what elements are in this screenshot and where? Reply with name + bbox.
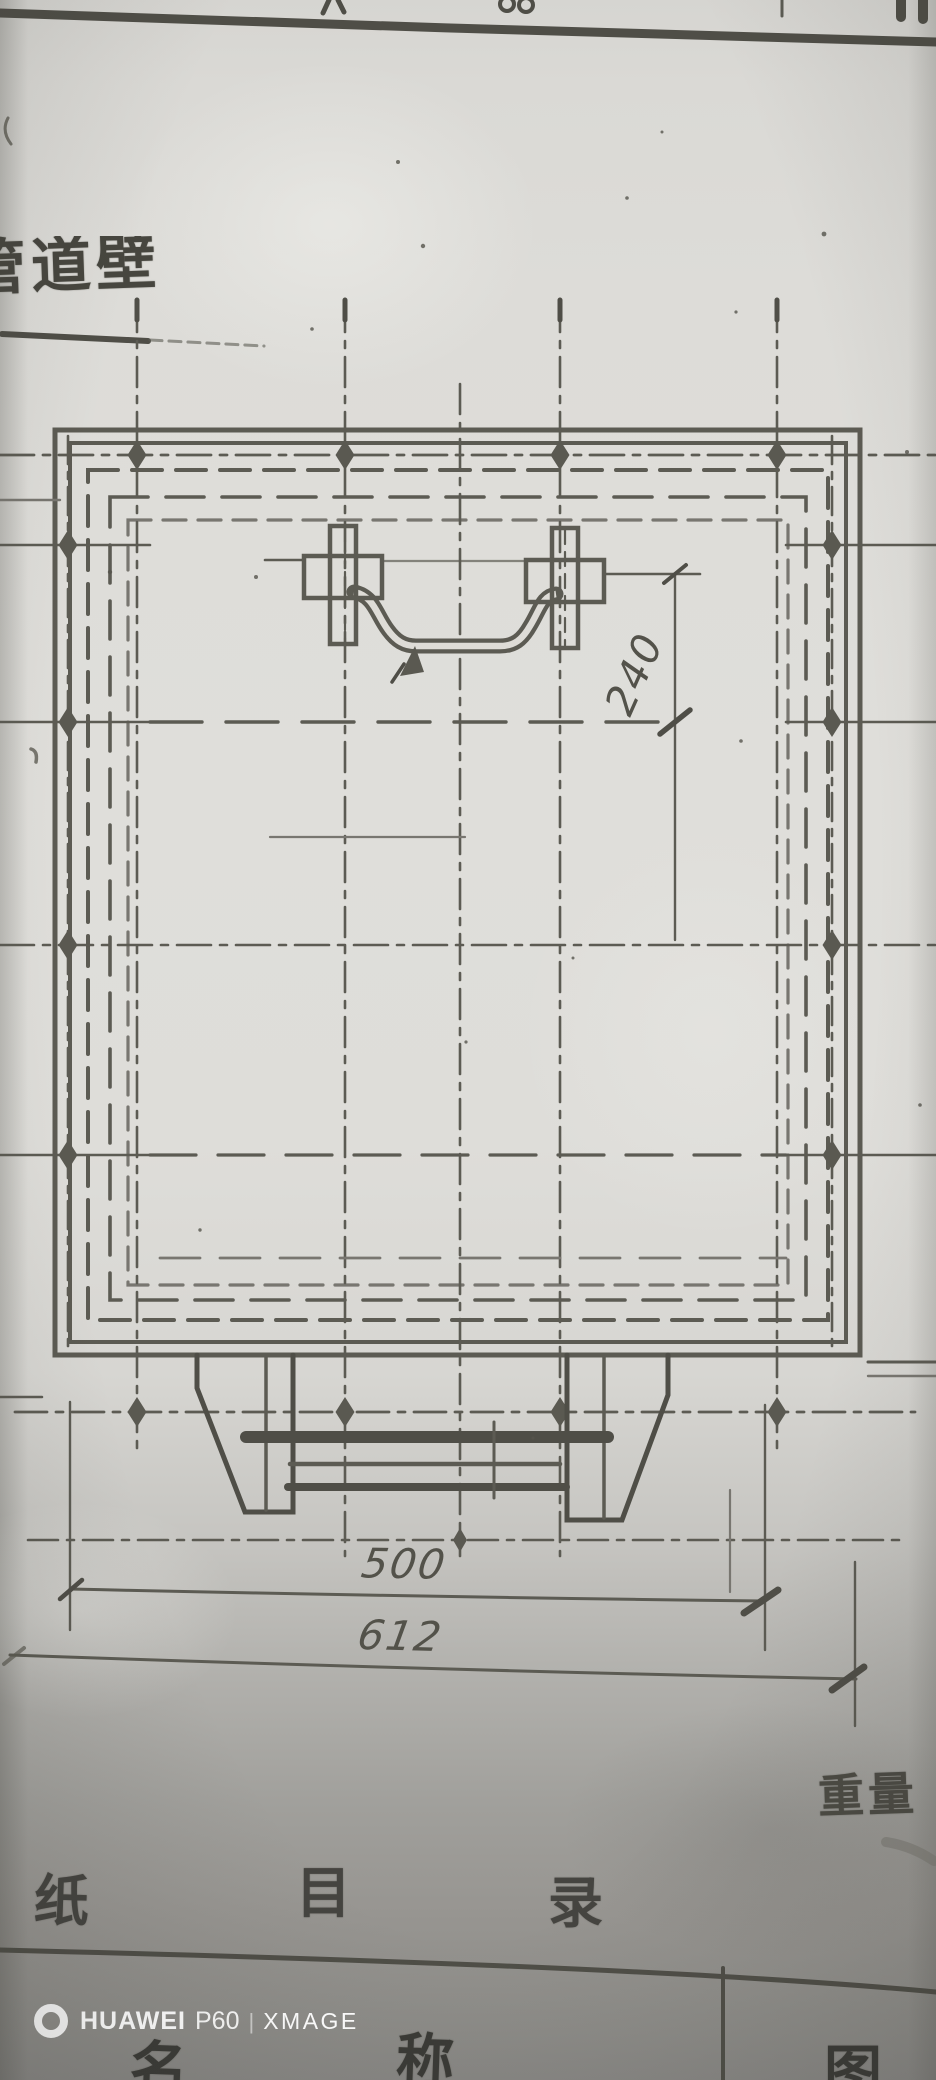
watermark-engine: XMAGE bbox=[263, 2008, 359, 2035]
name-col-char-ming: 名 bbox=[129, 2039, 189, 2080]
sheet-header-rule bbox=[0, 0, 936, 42]
figure-col-char-tu: 图 bbox=[824, 2044, 882, 2080]
catalog-char-mu: 目 bbox=[296, 1866, 351, 1921]
handle-assembly bbox=[265, 526, 604, 682]
weight-label: 重量 bbox=[817, 1770, 919, 1819]
name-col-char-cheng: 称 bbox=[395, 2031, 455, 2080]
dim-612-value: 612 bbox=[354, 1611, 446, 1661]
handle-bolt-left bbox=[304, 526, 382, 644]
center-line-axes bbox=[0, 300, 936, 1556]
watermark-model: P60 bbox=[195, 2007, 239, 2036]
camera-watermark: HUAWEI P60 | XMAGE bbox=[34, 2004, 359, 2038]
camera-ring-icon bbox=[34, 2004, 68, 2038]
watermark-brand: HUAWEI bbox=[80, 2007, 186, 2036]
catalog-char-zhi: 纸 bbox=[33, 1873, 90, 1930]
catalog-char-lu: 录 bbox=[548, 1876, 603, 1931]
dim-240-value: 240 bbox=[595, 626, 673, 723]
drawing-title-text: 管道壁 bbox=[0, 236, 162, 299]
diamond-nodes bbox=[59, 440, 842, 1552]
frame-rectangles bbox=[55, 430, 860, 1355]
bracket-assembly bbox=[197, 1355, 668, 1520]
drawing-title: 管道壁 bbox=[0, 236, 186, 338]
photo-of-engineering-drawing: 240 500 bbox=[0, 0, 936, 2080]
watermark-separator: | bbox=[248, 2009, 254, 2035]
dimension-240: 240 bbox=[595, 565, 700, 940]
dim-500-value: 500 bbox=[358, 1540, 450, 1589]
